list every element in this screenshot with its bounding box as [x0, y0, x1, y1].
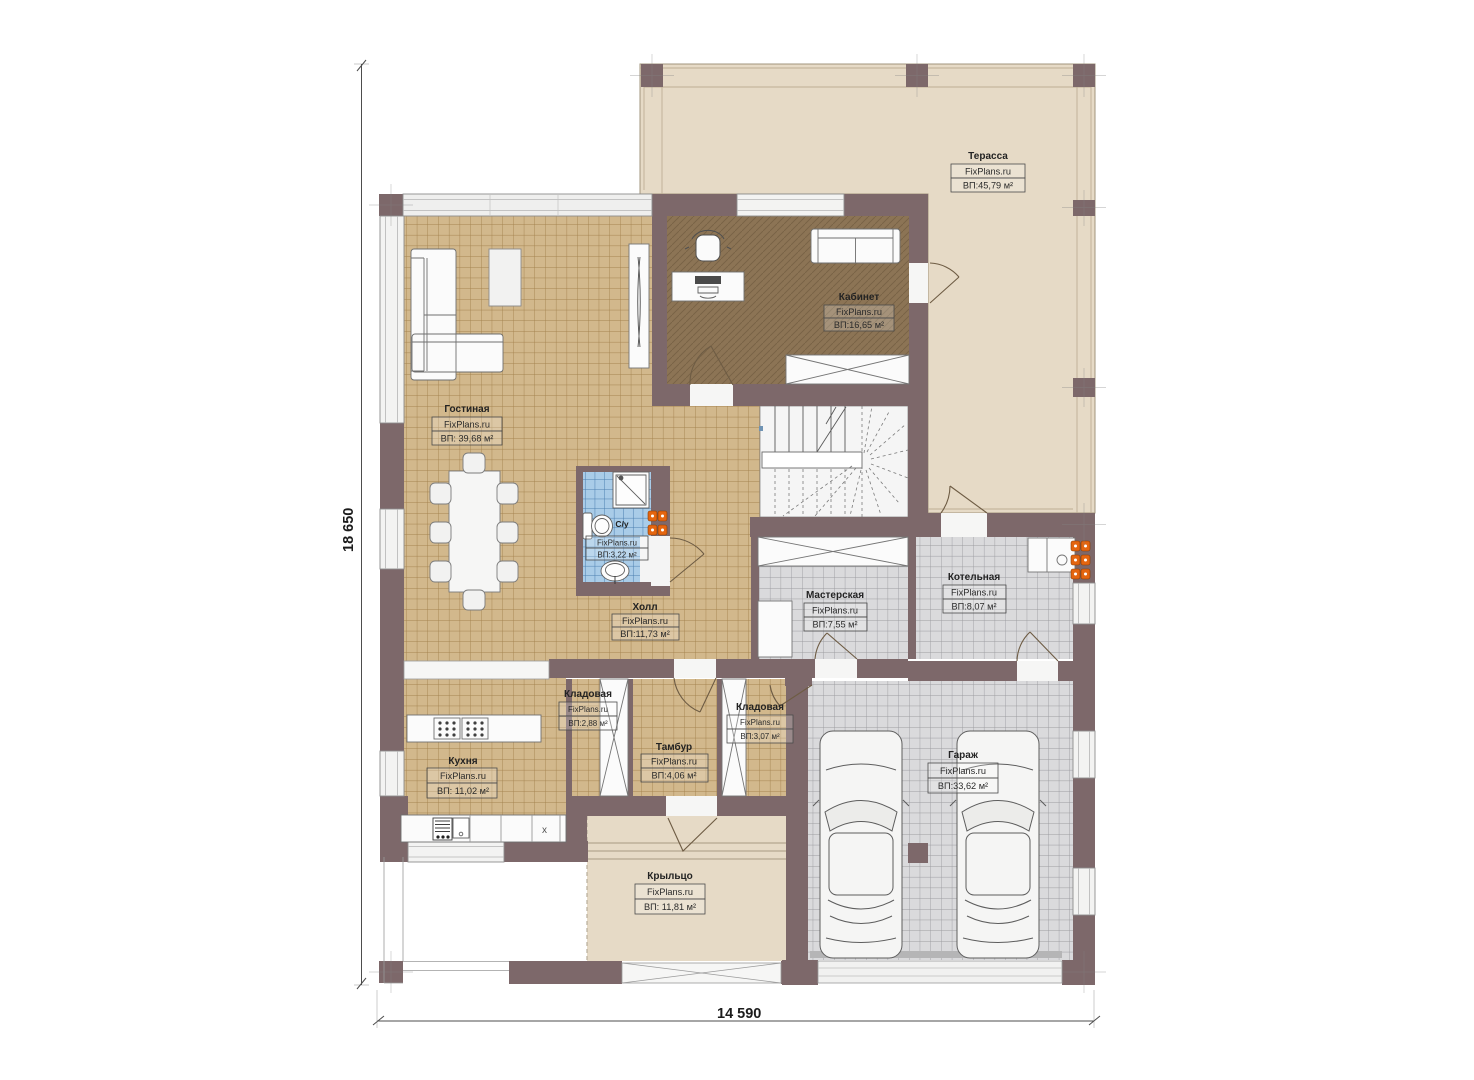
svg-text:FixPlans.ru: FixPlans.ru: [647, 887, 693, 897]
svg-text:ВП:11,73 м²: ВП:11,73 м²: [620, 629, 670, 639]
svg-text:ВП:2,88 м²: ВП:2,88 м²: [568, 719, 608, 728]
svg-text:ВП:45,79 м²: ВП:45,79 м²: [963, 181, 1013, 191]
svg-text:Кладовая: Кладовая: [736, 702, 784, 713]
svg-text:С/у: С/у: [615, 519, 629, 529]
svg-text:ВП:3,22 м²: ВП:3,22 м²: [597, 551, 637, 560]
svg-text:ВП:3,07 м²: ВП:3,07 м²: [740, 732, 780, 741]
svg-text:FixPlans.ru: FixPlans.ru: [951, 588, 997, 598]
svg-text:Гостиная: Гостиная: [444, 404, 489, 415]
svg-text:FixPlans.ru: FixPlans.ru: [740, 718, 780, 727]
svg-text:Гараж: Гараж: [948, 750, 979, 761]
svg-text:FixPlans.ru: FixPlans.ru: [622, 616, 668, 626]
svg-text:FixPlans.ru: FixPlans.ru: [597, 539, 637, 548]
svg-text:18 650: 18 650: [341, 508, 357, 552]
svg-text:ВП:8,07 м²: ВП:8,07 м²: [951, 602, 996, 612]
svg-text:ВП:7,55 м²: ВП:7,55 м²: [812, 620, 857, 630]
svg-text:FixPlans.ru: FixPlans.ru: [568, 705, 608, 714]
svg-text:Холл: Холл: [632, 602, 657, 613]
svg-text:FixPlans.ru: FixPlans.ru: [940, 766, 986, 776]
svg-text:FixPlans.ru: FixPlans.ru: [444, 420, 490, 430]
svg-text:Кабинет: Кабинет: [839, 291, 880, 303]
svg-text:FixPlans.ru: FixPlans.ru: [965, 167, 1011, 177]
svg-text:ВП: 11,81 м²: ВП: 11,81 м²: [644, 902, 696, 912]
svg-text:Тамбур: Тамбур: [656, 741, 692, 753]
svg-text:x: x: [542, 825, 547, 836]
svg-text:Терасса: Терасса: [968, 151, 1008, 162]
svg-text:ВП: 39,68 м²: ВП: 39,68 м²: [441, 434, 494, 444]
svg-text:FixPlans.ru: FixPlans.ru: [440, 771, 486, 781]
svg-text:Кладовая: Кладовая: [564, 689, 612, 700]
svg-text:ВП: 11,02 м²: ВП: 11,02 м²: [437, 786, 489, 796]
svg-text:FixPlans.ru: FixPlans.ru: [836, 307, 882, 317]
svg-text:Котельная: Котельная: [948, 572, 1001, 583]
svg-text:FixPlans.ru: FixPlans.ru: [651, 757, 697, 767]
svg-text:ВП:33,62 м²: ВП:33,62 м²: [938, 781, 988, 791]
svg-text:FixPlans.ru: FixPlans.ru: [812, 606, 858, 616]
svg-text:14 590: 14 590: [717, 1006, 761, 1022]
svg-text:Кухня: Кухня: [448, 756, 477, 767]
svg-text:ВП:4,06 м²: ВП:4,06 м²: [651, 771, 696, 781]
svg-text:Крыльцо: Крыльцо: [647, 871, 693, 882]
svg-text:ВП:16,65 м²: ВП:16,65 м²: [834, 320, 884, 330]
svg-text:Мастерская: Мастерская: [806, 590, 864, 601]
